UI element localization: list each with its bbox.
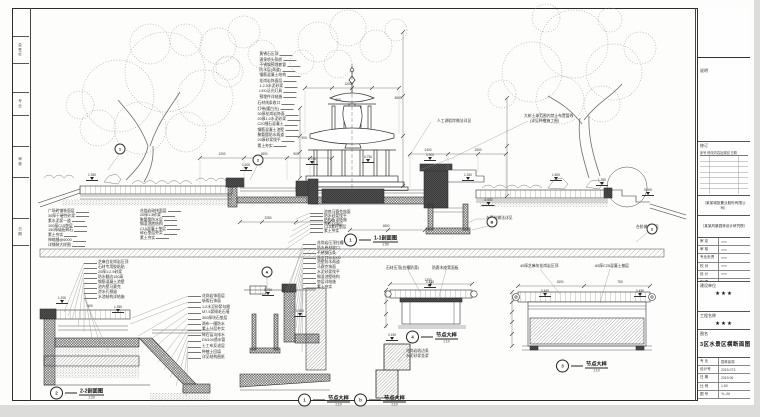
annotation-text: C20细石混凝土: [258, 122, 284, 127]
info-value: 园林景观: [719, 359, 750, 364]
title-block: 说明 修订 序号 修改内容及原因 日期 （某某城投置业股份有限公司） （某某风景…: [697, 8, 750, 401]
leader-tick-icon: [188, 358, 201, 359]
elevation-marker: 1.200: [240, 163, 252, 171]
leader-tick-icon: [287, 120, 300, 121]
detail-number: 4: [411, 335, 414, 340]
annotation-text: 素土夯实: [317, 285, 332, 290]
leader-tick-icon: [280, 109, 293, 110]
leader-tick-icon: [84, 283, 97, 284]
notes-label: 说明: [700, 68, 708, 73]
elevation-triangle-icon: [390, 337, 394, 340]
detail-title-label: 22-2剖面图1:20: [50, 387, 104, 400]
annotation-text: 20厚砂浆找平: [258, 138, 281, 143]
elevation-triangle-icon: [266, 292, 270, 295]
elevation-triangle-icon: [554, 177, 558, 180]
leader-tick-icon: [73, 241, 86, 242]
elevation-marker: 1.350: [112, 305, 124, 313]
dimension-text: 600: [335, 98, 340, 102]
info-label: 比 例: [698, 383, 719, 390]
annotation-text: 详铺装大样图: [48, 243, 71, 248]
leader-tick-icon: [310, 220, 323, 221]
elevation-marker: 0.450: [424, 280, 436, 288]
detail-title: 节点大样: [435, 331, 458, 339]
elevation-triangle-icon: [466, 177, 470, 180]
annotation-stack-detail1-top-notes: 芝麻白花岗岩压顶石材专用胶粘贴20厚1:2.5砂浆防水翻边150高钢筋混凝土池壁…: [84, 260, 128, 300]
leader-tick-icon: [188, 324, 201, 325]
annotation-text: 种植土回填: [202, 350, 221, 355]
dimension-text: 1200: [218, 152, 225, 156]
leader-tick-icon: [282, 71, 295, 72]
info-label: 专 业: [698, 358, 719, 365]
leader-tick-icon: [76, 212, 89, 213]
info-label: 设计号: [698, 366, 719, 373]
revision-label: 修订: [700, 143, 748, 149]
detail-scale: 1:10: [593, 368, 600, 372]
annotation-text: 灯带(暖白光): [258, 107, 280, 112]
info-value: 1:50: [719, 384, 750, 388]
sheet-info-row: 设计号 2019-073: [698, 366, 750, 374]
annotation-stack-basin-floor-notes: 池底马赛克饰面防水砂浆找平结构板详结施陶粒回填层C15素砼垫层素土夯实: [310, 211, 351, 234]
titleblock-notes: 说明: [698, 58, 750, 142]
leader-tick-icon: [287, 66, 300, 67]
elevation-marker: -0.600: [481, 198, 494, 206]
detail-title: 2-2剖面图: [79, 387, 104, 395]
field-label: 设 计: [698, 271, 719, 278]
leader-tick-icon: [84, 263, 97, 264]
label-leader-line: [421, 337, 433, 338]
annotation-text: 素土夯实: [324, 229, 339, 234]
elevation-triangle-icon: [428, 284, 432, 287]
dimension-text: 2250: [264, 216, 271, 220]
project-label: 工程名称: [700, 313, 748, 319]
leader-tick-icon: [310, 232, 323, 233]
dimension-text: 1200: [344, 82, 351, 86]
detail-number-circle: 1: [298, 394, 311, 407]
leader-tick-icon: [303, 258, 316, 259]
elevation-triangle-icon: [646, 192, 650, 195]
detail-number: 2: [55, 391, 58, 396]
sheet-info-rows: 专 业 园林景观 设计号 2019-073 日 期 2019.06 比 例 1:…: [698, 358, 750, 398]
elevation-triangle-icon: [90, 177, 94, 180]
project-section: 工程名称 ★★★: [698, 312, 750, 330]
annotation-line: 水池结构详结施: [84, 295, 128, 300]
detail-title-wrap: 1-1剖面图1:50: [373, 234, 398, 246]
leader-tick-icon: [188, 302, 201, 303]
dimension-text: 750: [617, 280, 622, 284]
leader-tick-icon: [284, 125, 297, 126]
annotation-text: 两布一膜防水: [202, 322, 225, 327]
leader-tick-icon: [303, 278, 316, 279]
elevation-triangle-icon: [116, 309, 120, 312]
detail-number: 1: [303, 398, 306, 403]
detail-number-circle: 1: [344, 234, 357, 247]
annotation-line: 素土夯实: [140, 236, 181, 241]
leader-tick-icon: [84, 288, 97, 289]
margin-block: 专业: [13, 92, 29, 116]
annotation-line: 素土夯实: [303, 285, 344, 290]
signature-row: 审 定 ×××: [698, 238, 750, 246]
leader-tick-icon: [303, 288, 316, 289]
dimension-text: 2400: [424, 148, 431, 152]
callout-note: 60厚C25混凝土基层: [595, 264, 629, 269]
callout-number: B: [491, 220, 494, 225]
annotation-stack-fountain-lower-notes: 石材线条收口灯带(暖白光)30厚花岗岩饰面20厚1:2水泥砂浆C20细石混凝土钢…: [258, 101, 301, 149]
drawing-name-label: 图名: [700, 331, 748, 337]
elevation-marker: 1.200: [56, 296, 68, 304]
client-value: ★★★: [700, 291, 748, 297]
leader-tick-icon: [282, 141, 295, 142]
leader-tick-icon: [188, 341, 201, 342]
leader-tick-icon: [287, 76, 300, 77]
info-value: 2019-073: [719, 368, 750, 372]
info-label: 图 号: [698, 391, 719, 398]
leader-tick-icon: [303, 273, 316, 274]
annotation-text: 碎石盲沟排水: [202, 333, 225, 338]
signature-row: 校 对 ×××: [698, 263, 750, 271]
elevation-marker: 1.350: [596, 178, 608, 186]
leader-tick-icon: [167, 229, 180, 230]
info-value: YL-06: [719, 392, 750, 396]
sheet-info-row: 日 期 2019.06: [698, 374, 750, 382]
elevation-marker: 1.350: [462, 173, 474, 181]
detail-callout-bubble: 1: [115, 144, 126, 155]
elevation-marker: 0.450: [634, 289, 646, 297]
margin-block-label: 会签栏: [19, 43, 24, 57]
client-label: 建设单位: [700, 283, 748, 289]
elevation-marker: 0.150: [386, 333, 398, 341]
detail-callout-bubble: 2: [253, 155, 264, 166]
elevation-marker: 0.750: [262, 288, 274, 296]
dimension-text: 3600: [394, 96, 401, 100]
leader-tick-icon: [303, 244, 316, 245]
leader-tick-icon: [84, 293, 97, 294]
dimension-text: 1800: [382, 224, 389, 228]
margin-block: 日期: [13, 218, 29, 246]
leader-tick-icon: [164, 234, 177, 235]
annotation-stack-fountain-upper-notes: 黄锈石压顶涌泉喷头铜质不锈钢预埋套管防水层(两道)钢筋混凝土结构花岗岩饰面层1:…: [259, 52, 300, 100]
field-label: 校 对: [698, 263, 719, 270]
leader-tick-icon: [72, 246, 85, 247]
detail-title-wrap: 节点大样1:10: [585, 360, 608, 372]
annotation-text: DN100透水管: [202, 338, 225, 343]
annotation-text: 黄锈石压顶: [259, 52, 278, 57]
callout-note: 石材压顶(拉槽防滑): [386, 266, 419, 271]
detail-number: 3: [561, 364, 564, 369]
callout-number: A: [266, 270, 269, 275]
detail-callout-bubble: A: [262, 267, 273, 278]
dimension-text: 900: [301, 136, 306, 140]
leader-tick-icon: [74, 226, 87, 227]
annotation-text: M7.5浆砌毛石墙: [202, 310, 229, 315]
label-leader-line: [571, 366, 583, 367]
detail-title-wrap: 2-2剖面图1:20: [79, 387, 104, 399]
sheet-info-table: 专 业 园林景观 设计号 2019-073 日 期 2019.06 比 例 1:…: [698, 358, 750, 401]
sheet-info-row: 比 例 1:50: [698, 383, 750, 391]
drawing-title: 3区水景区横断面图: [700, 340, 748, 348]
detail-number: b: [359, 398, 362, 403]
leader-tick-icon: [76, 216, 89, 217]
detail-callout-bubble: B: [487, 217, 498, 228]
callout-number: 2: [651, 227, 653, 232]
leader-tick-icon: [188, 335, 201, 336]
info-value: 2019.06: [719, 376, 750, 380]
dimension-text: 1500: [556, 280, 563, 284]
margin-block: 会签栏: [13, 36, 29, 64]
leader-tick-icon: [164, 220, 177, 221]
elevation-marker: 0.900: [424, 153, 436, 161]
drawing-name-section: 图名 3区水景区横断面图: [698, 330, 750, 358]
leader-tick-icon: [285, 130, 298, 131]
leader-tick-icon: [310, 213, 323, 214]
elevation-triangle-icon: [638, 293, 642, 296]
leader-tick-icon: [84, 273, 97, 274]
elevation-marker: 0.750: [306, 157, 318, 165]
elevation-marker: 0.450: [539, 289, 551, 297]
annotation-text: 钢筋混凝土结构: [259, 73, 286, 78]
leader-tick-icon: [84, 298, 97, 299]
callout-number: 2: [257, 158, 259, 163]
callout-note: 40厚芝麻灰花岗岩压顶: [520, 264, 558, 269]
annotation-text: 素土夯实: [140, 236, 155, 241]
detail-scale: 1:10: [391, 402, 398, 406]
margin-block-label: 审核: [19, 157, 24, 166]
annotation-text: 斩假石饰面: [202, 299, 221, 304]
detail-scale: 1:10: [335, 402, 342, 406]
leader-tick-icon: [310, 224, 323, 225]
detail-number: 1: [349, 238, 352, 243]
leader-tick-icon: [303, 263, 316, 264]
annotation-text: 石材线条收口: [258, 101, 281, 106]
sheet-size-value: A1 加长: [698, 400, 750, 401]
leader-tick-icon: [283, 92, 296, 93]
dimension-text: 1500: [474, 148, 481, 152]
annotation-text: 详见结构图纸: [202, 355, 225, 360]
leader-tick-icon: [72, 221, 85, 222]
detail-number-circle: b: [354, 394, 367, 407]
elevation-triangle-icon: [600, 182, 604, 185]
info-label: 日 期: [698, 374, 719, 381]
leader-tick-icon: [188, 330, 201, 331]
annotation-line: 详铺装大样图: [48, 243, 89, 248]
margin-block-label: 日期: [19, 227, 24, 236]
leader-tick-icon: [188, 307, 201, 308]
detail-title-wrap: 节点大样1:10: [435, 331, 458, 343]
leader-tick-icon: [283, 60, 296, 61]
label-leader-line: [313, 400, 325, 401]
leader-tick-icon: [168, 211, 181, 212]
detail-title-label: 4节点大样1:10: [406, 331, 458, 344]
elevation-marker: 1.350: [86, 173, 98, 181]
signature-row: 设 计 ×××: [698, 271, 750, 279]
field-label: 审 核: [698, 246, 719, 253]
elevation-marker: 0.900: [642, 188, 654, 196]
detail-title-wrap: 节点大样1:10: [383, 394, 406, 406]
detail-title: 节点大样: [383, 394, 406, 402]
leader-tick-icon: [188, 296, 201, 297]
elevation-triangle-icon: [366, 159, 370, 162]
annotation-stack-detail1-right-notes: 花岗岩饰面层斩假石饰面1:2水泥砂浆勾缝M7.5浆砌毛石墙300厚块石垫层两布一…: [188, 293, 230, 360]
label-leader-line: [65, 393, 77, 394]
elevation-triangle-icon: [543, 293, 547, 296]
detail-title: 节点大样: [327, 394, 350, 402]
detail-callout-bubble: 2: [647, 224, 658, 235]
elevation-triangle-icon: [486, 202, 490, 205]
field-value: ×××: [719, 256, 750, 260]
detail-number-circle: 3: [556, 360, 569, 373]
dimension-text: 600: [87, 304, 92, 308]
detail-scale: 1:20: [88, 395, 95, 399]
company-line-2: （某某风景园林设计研究院）: [698, 216, 750, 238]
annotation-layer: 黄锈石压顶涌泉喷头铜质不锈钢预埋套管防水层(两道)钢筋混凝土结构花岗岩饰面层1:…: [0, 0, 760, 417]
dimension-text: 900: [293, 152, 298, 156]
drawing-sheet: 黄锈石压顶涌泉喷头铜质不锈钢预埋套管防水层(两道)钢筋混凝土结构花岗岩饰面层1:…: [0, 0, 760, 417]
annotation-line: 素土夯实: [258, 143, 301, 148]
field-value: ×××: [719, 272, 750, 276]
leader-tick-icon: [303, 268, 316, 269]
leader-tick-icon: [188, 352, 201, 353]
elevation-triangle-icon: [298, 313, 302, 316]
label-leader-line: [359, 240, 371, 241]
leader-tick-icon: [281, 104, 294, 105]
leader-tick-icon: [303, 248, 316, 249]
leader-tick-icon: [285, 136, 298, 137]
revision-rows: [700, 156, 748, 194]
leader-tick-icon: [84, 278, 97, 279]
field-value: ×××: [719, 264, 750, 268]
sheet-info-row: 图 号 YL-06: [698, 391, 750, 398]
company-line-1: （某某城投置业股份有限公司）: [698, 196, 750, 216]
titleblock-revision: 修订 序号 修改内容及原因 日期: [698, 142, 750, 196]
leader-tick-icon: [286, 115, 299, 116]
annotation-text: 300厚块石垫层: [202, 316, 227, 321]
annotation-text: 涌泉喷头铜质: [259, 58, 282, 63]
annotation-text: 水池结构详结施: [98, 295, 125, 300]
titleblock-logo-area: [698, 8, 750, 58]
signature-row: 审 核 ×××: [698, 246, 750, 254]
field-label: 专业负责: [698, 254, 719, 261]
leader-tick-icon: [274, 146, 287, 147]
project-value: ★★★: [700, 321, 748, 327]
detail-title-label: b节点大样1:10: [354, 394, 406, 407]
leader-tick-icon: [188, 319, 201, 320]
detail-scale: 1:10: [443, 339, 450, 343]
elevation-marker: 0.750: [362, 155, 374, 163]
leader-tick-icon: [284, 87, 297, 88]
callout-number: 1: [119, 147, 121, 152]
leader-tick-icon: [303, 253, 316, 254]
sheet-size-row: A1 加长: [698, 398, 750, 401]
callout-note: 防腐木座凳面板: [432, 266, 459, 271]
annotation-text: 花岗岩饰面层: [202, 294, 225, 299]
leader-tick-icon: [188, 347, 201, 348]
detail-number-circle: 2: [50, 387, 63, 400]
leader-tick-icon: [84, 268, 97, 269]
elevation-triangle-icon: [244, 167, 248, 170]
annotation-text: 土工布反滤层: [202, 344, 225, 349]
leader-tick-icon: [310, 216, 323, 217]
elevation-marker: 1.500: [550, 173, 562, 181]
sheet-info-row: 专 业 园林景观: [698, 358, 750, 366]
detail-title: 节点大样: [585, 360, 608, 368]
leader-tick-icon: [310, 228, 323, 229]
leader-tick-icon: [283, 81, 296, 82]
elevation-triangle-icon: [428, 157, 432, 160]
elevation-marker: 0.300: [294, 309, 306, 317]
leader-tick-icon: [303, 283, 316, 284]
annotation-text: 素土分层夯实: [202, 327, 225, 332]
field-value: ×××: [719, 240, 750, 244]
field-value: ×××: [719, 248, 750, 252]
annotation-stack-paving-layers-notes: 广场砖铺装面层30厚干硬性砂浆素水泥浆一道100厚C15垫层150厚级配碎石素土…: [48, 209, 89, 248]
callout-note: 水泥砂浆坐浆: [406, 354, 429, 359]
callout-note: 人工湖驳岸做法详见: [437, 119, 471, 124]
signature-row: 专业负责 ×××: [698, 254, 750, 262]
margin-block: 审核: [13, 146, 29, 178]
leader-tick-icon: [283, 97, 296, 98]
annotation-line: 预埋件详结施: [259, 94, 300, 99]
signature-fields: 审 定 ××× 审 核 ××× 专业负责 ××× 校 对 ××× 设 计 ×××…: [698, 238, 750, 282]
annotation-stack-pool-floor-notes: 花岗岩碎拼面层20厚1:3砂浆聚氨酯防水层钢混池底结构C15混凝土垫层碎石垫层夯…: [140, 209, 181, 241]
leader-tick-icon: [188, 313, 201, 314]
detail-title-label: 3节点大样1:10: [556, 360, 608, 373]
leader-tick-icon: [64, 236, 77, 237]
leader-tick-icon: [279, 55, 292, 56]
detail-title-wrap: 节点大样1:10: [327, 394, 350, 406]
elevation-triangle-icon: [60, 300, 64, 303]
annotation-text: LED泛光灯具: [259, 89, 282, 94]
margin-block-label: 专业: [19, 99, 24, 108]
label-leader-line: [369, 400, 381, 401]
detail-title-label: 11-1剖面图1:50: [344, 234, 398, 247]
field-label: 审 定: [698, 238, 719, 245]
leader-tick-icon: [156, 238, 169, 239]
detail-title-label: 1节点大样1:10: [298, 394, 350, 407]
annotation-stack-detailA-notes: 花岗岩压顶拉槽防水卷材收口不锈钢压条溢水口@3000池壁防水两道马赛克饰面水泥砂…: [303, 241, 344, 290]
detail-title: 1-1剖面图: [373, 234, 398, 242]
detail-number-circle: 4: [406, 331, 419, 344]
leader-tick-icon: [74, 231, 87, 232]
annotation-line: 详见结构图纸: [188, 355, 230, 361]
annotation-text: 预埋件详结施: [259, 95, 282, 100]
annotation-text: 素土夯实: [258, 144, 273, 149]
callout-note: (详见种植施工图): [530, 119, 559, 124]
detail-scale: 1:50: [382, 242, 389, 246]
elevation-triangle-icon: [310, 161, 314, 164]
leader-tick-icon: [162, 216, 175, 217]
client-section: 建设单位 ★★★: [698, 282, 750, 312]
